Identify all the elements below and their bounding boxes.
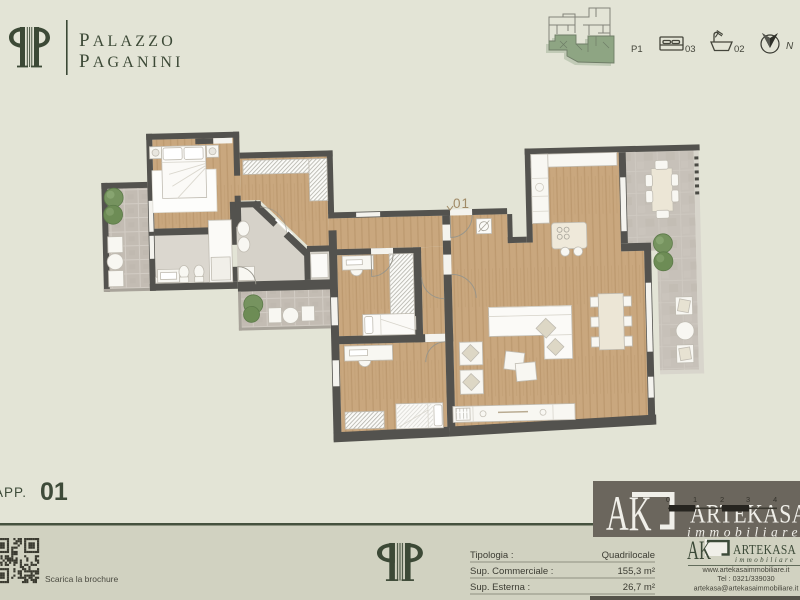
svg-text:01: 01: [453, 196, 470, 211]
svg-text:4: 4: [773, 495, 777, 504]
svg-text:AK: AK: [687, 536, 711, 565]
svg-text:0: 0: [666, 495, 670, 504]
svg-text:01: 01: [40, 478, 68, 506]
svg-text:Tel : 0321/339030: Tel : 0321/339030: [717, 574, 774, 583]
svg-text:1: 1: [693, 495, 697, 504]
svg-text:Sup. Esterna :: Sup. Esterna :: [470, 582, 530, 593]
svg-text:Scarica la brochure: Scarica la brochure: [45, 574, 119, 584]
svg-text:PALAZZO: PALAZZO: [79, 30, 176, 51]
svg-text:artekasa@artekasaimmobiliare.i: artekasa@artekasaimmobiliare.it: [694, 584, 799, 593]
svg-text:Tipologia :: Tipologia :: [470, 550, 513, 561]
svg-text:immobiliare: immobiliare: [735, 556, 795, 564]
svg-text:www.artekasaimmobiliare.it: www.artekasaimmobiliare.it: [701, 565, 789, 574]
svg-text:Sup. Commerciale :: Sup. Commerciale :: [470, 566, 553, 577]
svg-text:PAGANINI: PAGANINI: [79, 51, 184, 72]
svg-text:155,3 m²: 155,3 m²: [618, 566, 656, 577]
svg-text:26,7 m²: 26,7 m²: [623, 582, 655, 593]
svg-text:APP.: APP.: [0, 485, 27, 500]
svg-text:N: N: [786, 41, 794, 52]
svg-text:P1: P1: [631, 44, 643, 55]
svg-text:2: 2: [720, 495, 724, 504]
svg-text:02: 02: [734, 44, 745, 55]
svg-text:Quadrilocale: Quadrilocale: [602, 550, 655, 561]
svg-text:ARTEKASA: ARTEKASA: [733, 542, 796, 557]
svg-text:03: 03: [685, 44, 696, 55]
svg-text:3: 3: [746, 495, 750, 504]
